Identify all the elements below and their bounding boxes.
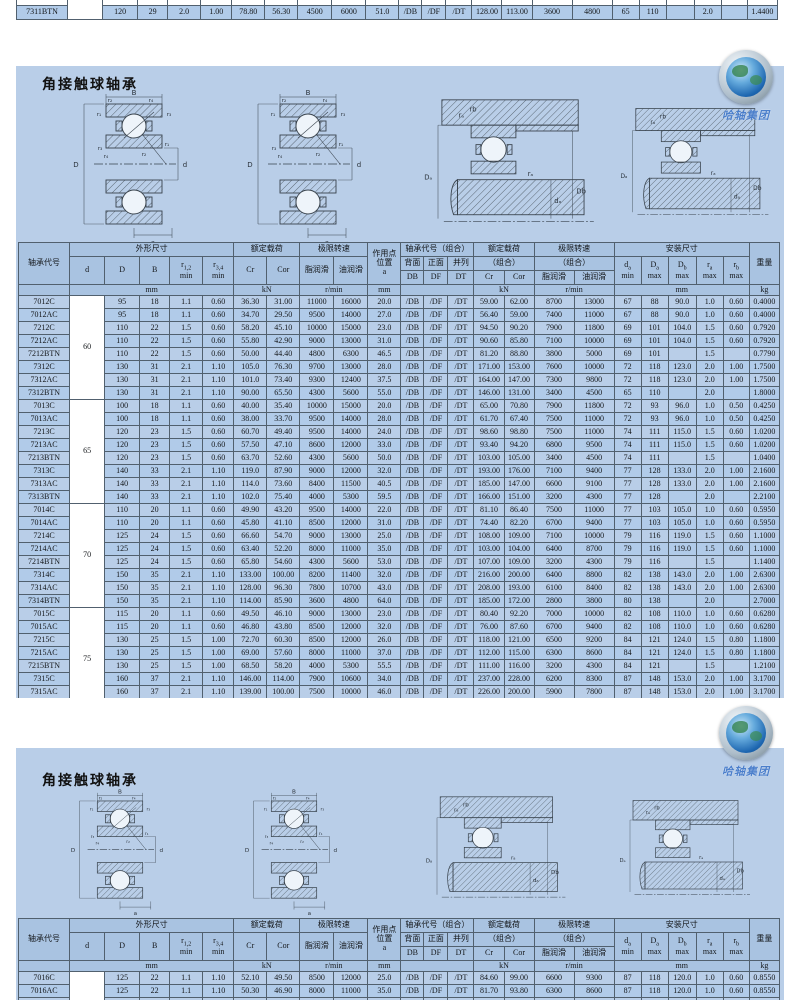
Cr-cell: 60.70 bbox=[234, 426, 267, 439]
table-row: 7314BTN150352.11.10114.0085.903600480064… bbox=[19, 595, 780, 608]
r12-cell: 1.5 bbox=[170, 634, 203, 647]
o-cell: 11000 bbox=[334, 985, 368, 998]
table-row: 7313C140332.11.10119.087.9090001200032.0… bbox=[19, 465, 780, 478]
table-row: 7212C110221.50.6058.2045.10100001500023.… bbox=[19, 322, 780, 335]
col-back: 背面 bbox=[401, 933, 424, 947]
globe-logo-icon bbox=[719, 50, 773, 104]
rb-cell: 0.60 bbox=[723, 322, 749, 335]
Da-cell: 128 bbox=[641, 465, 668, 478]
D-cell: 120 bbox=[105, 426, 140, 439]
group-combo-code: 轴承代号（组合） bbox=[401, 243, 474, 257]
page-title: 角接触球轴承 bbox=[42, 770, 138, 790]
a-cell: 64.0 bbox=[368, 595, 401, 608]
ra-cell: 2.0 bbox=[696, 478, 723, 491]
bore-diameter-merged-cell: 75 bbox=[70, 608, 105, 699]
col-d: d bbox=[70, 257, 105, 285]
db-cell: /DB bbox=[401, 374, 424, 387]
D-cell: 95 bbox=[105, 309, 140, 322]
da-cell: 72 bbox=[614, 361, 641, 374]
Cor-cell: 52.20 bbox=[267, 543, 300, 556]
cCor-cell: 200.00 bbox=[504, 569, 534, 582]
group-combo-load: 额定载荷 bbox=[474, 919, 534, 933]
bearing-code-cell: 7312AC bbox=[19, 374, 70, 387]
cCr-cell: 108.00 bbox=[474, 530, 504, 543]
bore-diameter-merged-cell: 60 bbox=[70, 296, 105, 400]
Cr-cell: 119.0 bbox=[234, 465, 267, 478]
spec-table-header: 轴承代号 外形尺寸 额定载荷 极限转速 作用点 位置 a 轴承代号（组合） 额定… bbox=[19, 919, 780, 972]
co-cell: 11800 bbox=[574, 322, 614, 335]
r12-cell: 1.1 bbox=[170, 621, 203, 634]
D-cell: 130 bbox=[105, 647, 140, 660]
Da-cell: 111 bbox=[641, 439, 668, 452]
da-cell: 82 bbox=[614, 608, 641, 621]
D-cell: 115 bbox=[105, 621, 140, 634]
df-cell: /DF bbox=[424, 530, 448, 543]
Db-cell: 96.0 bbox=[668, 400, 696, 413]
r12-cell: 1.5 bbox=[170, 530, 203, 543]
co-cell: 11000 bbox=[574, 504, 614, 517]
bearing-code-cell: 7311BTN bbox=[17, 6, 68, 20]
Cr-cell: 78.80 bbox=[232, 6, 265, 20]
rb-cell: 0.60 bbox=[723, 543, 749, 556]
rb-cell: 1.00 bbox=[723, 582, 749, 595]
a-cell: 32.0 bbox=[368, 569, 401, 582]
wt-cell: 0.6280 bbox=[749, 608, 779, 621]
table-row: 7013AC100181.10.6038.0033.7095001400028.… bbox=[19, 413, 780, 426]
group-dimensions: 外形尺寸 bbox=[70, 919, 234, 933]
unit-mm: mm bbox=[614, 961, 749, 972]
cCr-cell: 237.00 bbox=[474, 673, 504, 686]
a-cell: 35.0 bbox=[368, 543, 401, 556]
co-cell: 8800 bbox=[574, 569, 614, 582]
r12-cell: 1.5 bbox=[170, 439, 203, 452]
df-cell: /DF bbox=[424, 465, 448, 478]
cCr-cell: 164.00 bbox=[474, 374, 504, 387]
D-cell: 120 bbox=[105, 452, 140, 465]
df-cell: /DF bbox=[424, 491, 448, 504]
o-cell: 6300 bbox=[334, 348, 368, 361]
r12-cell: 1.5 bbox=[170, 543, 203, 556]
dt-cell: /DT bbox=[448, 335, 474, 348]
Db-cell bbox=[668, 452, 696, 465]
Cr-cell: 49.90 bbox=[234, 504, 267, 517]
dt-cell: /DT bbox=[448, 673, 474, 686]
table-row: 7214BTN125241.50.6065.8054.604300560053.… bbox=[19, 556, 780, 569]
wt-cell: 2.7000 bbox=[749, 595, 779, 608]
B-cell: 31 bbox=[140, 374, 170, 387]
df-cell: /DF bbox=[424, 621, 448, 634]
B-cell: 35 bbox=[140, 582, 170, 595]
ra-cell: 1.0 bbox=[696, 621, 723, 634]
cCor-cell: 93.80 bbox=[504, 985, 534, 998]
cg-cell: 3200 bbox=[534, 491, 574, 504]
table-row: 7016C125221.11.1052.1049.5085001200025.0… bbox=[19, 972, 780, 985]
df-cell: /DF bbox=[422, 6, 446, 20]
cCr-cell: 185.00 bbox=[474, 478, 504, 491]
bearing-code-cell: 7213BTN bbox=[19, 452, 70, 465]
db-cell: /DB bbox=[401, 673, 424, 686]
col-oil: 油润滑 bbox=[334, 933, 368, 961]
bearing-section-diagram bbox=[54, 88, 214, 246]
B-cell: 25 bbox=[140, 647, 170, 660]
a-cell: 33.0 bbox=[368, 439, 401, 452]
catalog-panel-2: 角接触球轴承 轴承代号 外形尺寸 额定载荷 极限转速 作用点 位置 a 轴承代号… bbox=[16, 748, 784, 1000]
Cor-cell: 58.20 bbox=[267, 660, 300, 673]
a-cell: 53.0 bbox=[368, 556, 401, 569]
da-cell: 87 bbox=[614, 686, 641, 699]
bearing-code-cell: 7215C bbox=[19, 634, 70, 647]
dt-cell: /DT bbox=[448, 504, 474, 517]
cCor-cell: 121.00 bbox=[504, 634, 534, 647]
ra-cell: 1.5 bbox=[696, 348, 723, 361]
cCor-cell: 131.00 bbox=[504, 387, 534, 400]
cg-cell: 6700 bbox=[534, 517, 574, 530]
D-cell: 130 bbox=[105, 634, 140, 647]
ra-cell: 2.0 bbox=[696, 361, 723, 374]
cCr-cell: 84.60 bbox=[474, 972, 504, 985]
cCor-cell: 115.00 bbox=[504, 647, 534, 660]
col-DF: DF bbox=[424, 271, 448, 285]
Cor-cell: 29.50 bbox=[267, 309, 300, 322]
table-row: 7015C75115201.10.6049.5046.1090001300023… bbox=[19, 608, 780, 621]
table-row: 7212AC110221.50.6055.8042.9090001300031.… bbox=[19, 335, 780, 348]
company-logo: 哈轴集团 bbox=[710, 50, 782, 123]
r34-cell: 0.60 bbox=[203, 426, 234, 439]
Cor-cell: 114.00 bbox=[267, 673, 300, 686]
Cr-cell: 105.0 bbox=[234, 361, 267, 374]
ra-cell: 1.0 bbox=[696, 413, 723, 426]
rb-cell: 0.60 bbox=[723, 621, 749, 634]
dt-cell: /DT bbox=[446, 6, 472, 20]
Db-cell: 153.0 bbox=[668, 673, 696, 686]
col-Cr: Cr bbox=[234, 257, 267, 285]
B-cell: 20 bbox=[140, 504, 170, 517]
Da-cell: 128 bbox=[641, 478, 668, 491]
B-cell: 22 bbox=[140, 348, 170, 361]
table-row: 7215BTN130251.51.0068.5058.204000530055.… bbox=[19, 660, 780, 673]
cCr-cell: 65.00 bbox=[474, 400, 504, 413]
D-cell: 130 bbox=[105, 387, 140, 400]
df-cell: /DF bbox=[424, 582, 448, 595]
wt-cell: 0.4000 bbox=[749, 309, 779, 322]
r34-cell: 0.60 bbox=[203, 543, 234, 556]
co-cell: 5000 bbox=[574, 348, 614, 361]
wt-cell: 1.1400 bbox=[749, 556, 779, 569]
da-cell: 82 bbox=[614, 569, 641, 582]
D-cell: 125 bbox=[105, 556, 140, 569]
combo-load-suffix: （组合） bbox=[474, 933, 534, 947]
o-cell: 5300 bbox=[334, 491, 368, 504]
r12-cell: 1.1 bbox=[170, 504, 203, 517]
co-cell: 3800 bbox=[574, 595, 614, 608]
da-cell: 77 bbox=[614, 465, 641, 478]
db-cell: /DB bbox=[401, 439, 424, 452]
bearing-code-cell: 7314BTN bbox=[19, 595, 70, 608]
co-cell: 9800 bbox=[574, 374, 614, 387]
r34-cell: 0.60 bbox=[203, 517, 234, 530]
rb-cell bbox=[723, 556, 749, 569]
dt-cell: /DT bbox=[448, 634, 474, 647]
Cr-cell: 63.70 bbox=[234, 452, 267, 465]
cCor-cell: 62.00 bbox=[504, 296, 534, 309]
ra-cell: 1.0 bbox=[696, 608, 723, 621]
D-cell: 110 bbox=[105, 517, 140, 530]
Da-cell: 111 bbox=[641, 426, 668, 439]
table-row: 7311BTN120292.01.0078.8056.304500600051.… bbox=[17, 6, 778, 20]
db-cell: /DB bbox=[401, 335, 424, 348]
bearing-code-cell: 7313C bbox=[19, 465, 70, 478]
Da-cell: 88 bbox=[641, 296, 668, 309]
Cor-cell: 56.30 bbox=[265, 6, 298, 20]
ra-cell: 2.0 bbox=[696, 686, 723, 699]
r12-cell: 1.5 bbox=[170, 348, 203, 361]
col-ra-max: ra max bbox=[696, 257, 723, 285]
group-combo-speed: 极限转速 bbox=[534, 919, 614, 933]
spec-table-header: 轴承代号 外形尺寸 额定载荷 极限转速 作用点 位置 a 轴承代号（组合） 额定… bbox=[19, 243, 780, 296]
cCor-cell: 86.40 bbox=[504, 504, 534, 517]
r34-cell: 1.10 bbox=[203, 595, 234, 608]
col-ra-max: ra max bbox=[696, 933, 723, 961]
df-cell: /DF bbox=[424, 400, 448, 413]
co-cell: 4300 bbox=[574, 556, 614, 569]
cCr-cell: 93.40 bbox=[474, 439, 504, 452]
Cor-cell: 44.40 bbox=[267, 348, 300, 361]
bearing-code-cell: 7013AC bbox=[19, 413, 70, 426]
df-cell: /DF bbox=[424, 972, 448, 985]
bearing-code-cell: 7015C bbox=[19, 608, 70, 621]
B-cell: 23 bbox=[140, 452, 170, 465]
co-cell: 9500 bbox=[574, 439, 614, 452]
a-cell: 32.0 bbox=[368, 465, 401, 478]
df-cell: /DF bbox=[424, 309, 448, 322]
cCor-cell: 104.00 bbox=[504, 543, 534, 556]
B-cell: 37 bbox=[140, 673, 170, 686]
da-cell: 72 bbox=[614, 413, 641, 426]
ra-cell: 2.0 bbox=[696, 374, 723, 387]
r12-cell: 1.5 bbox=[170, 322, 203, 335]
co-cell: 11000 bbox=[574, 413, 614, 426]
wt-cell: 0.7790 bbox=[749, 348, 779, 361]
col-combo-Cor: Cor bbox=[504, 271, 534, 285]
r12-cell: 1.5 bbox=[170, 452, 203, 465]
da-cell: 87 bbox=[614, 673, 641, 686]
db-cell: /DB bbox=[399, 6, 422, 20]
df-cell: /DF bbox=[424, 452, 448, 465]
Da-cell: 138 bbox=[641, 569, 668, 582]
dt-cell: /DT bbox=[448, 569, 474, 582]
r34-cell: 1.10 bbox=[203, 478, 234, 491]
cCr-cell: 216.00 bbox=[474, 569, 504, 582]
da-cell: 77 bbox=[614, 491, 641, 504]
cCor-cell: 82.20 bbox=[504, 517, 534, 530]
da-cell: 87 bbox=[614, 972, 641, 985]
dt-cell: /DT bbox=[448, 452, 474, 465]
cg-cell: 6600 bbox=[534, 972, 574, 985]
group-dimensions: 外形尺寸 bbox=[70, 243, 234, 257]
g-cell: 4300 bbox=[300, 387, 334, 400]
mounting-dimension-diagram bbox=[612, 792, 762, 914]
g-cell: 8000 bbox=[300, 647, 334, 660]
co-cell: 11000 bbox=[574, 309, 614, 322]
group-rated-load: 额定载荷 bbox=[234, 243, 300, 257]
db-cell: /DB bbox=[401, 660, 424, 673]
r12-cell: 1.1 bbox=[170, 608, 203, 621]
g-cell: 4300 bbox=[300, 556, 334, 569]
B-cell: 24 bbox=[140, 530, 170, 543]
cCr-cell: 166.00 bbox=[474, 491, 504, 504]
o-cell: 15000 bbox=[334, 400, 368, 413]
cCr-cell: 98.60 bbox=[474, 426, 504, 439]
Cr-cell: 36.30 bbox=[234, 296, 267, 309]
Cor-cell: 35.40 bbox=[267, 400, 300, 413]
cg-cell: 6800 bbox=[534, 439, 574, 452]
r12-cell: 2.1 bbox=[170, 582, 203, 595]
g-cell: 7800 bbox=[300, 582, 334, 595]
db-cell: /DB bbox=[401, 582, 424, 595]
Cor-cell: 54.60 bbox=[267, 556, 300, 569]
co-cell: 8300 bbox=[574, 673, 614, 686]
Cr-cell: 72.70 bbox=[234, 634, 267, 647]
wt-cell: 0.4250 bbox=[749, 400, 779, 413]
unit-mm: mm bbox=[70, 285, 234, 296]
bearing-code-cell: 7213AC bbox=[19, 439, 70, 452]
da-cell: 84 bbox=[614, 660, 641, 673]
db-cell: /DB bbox=[401, 621, 424, 634]
cg-cell: 3800 bbox=[534, 348, 574, 361]
col-r12-min: r1,2 min bbox=[170, 933, 203, 961]
bearing-code-cell: 7016C bbox=[19, 972, 70, 985]
bearing-code-cell: 7012C bbox=[19, 296, 70, 309]
D-cell: 100 bbox=[105, 400, 140, 413]
wt-cell: 0.4250 bbox=[749, 413, 779, 426]
table-row: 7315AC160372.11.10139.00100.007500100004… bbox=[19, 686, 780, 699]
wt-cell: 0.7920 bbox=[749, 335, 779, 348]
col-front: 正面 bbox=[424, 933, 448, 947]
r34-cell: 0.60 bbox=[203, 556, 234, 569]
Da-cell: 108 bbox=[641, 608, 668, 621]
o-cell: 13000 bbox=[334, 530, 368, 543]
cCr-cell: 103.00 bbox=[474, 543, 504, 556]
B-cell: 18 bbox=[140, 400, 170, 413]
o-cell: 15000 bbox=[334, 322, 368, 335]
D-cell: 160 bbox=[105, 673, 140, 686]
o-cell: 13000 bbox=[334, 608, 368, 621]
r12-cell: 1.5 bbox=[170, 426, 203, 439]
Cr-cell: 128.00 bbox=[234, 582, 267, 595]
dt-cell: /DT bbox=[448, 530, 474, 543]
cg-cell: 2800 bbox=[534, 595, 574, 608]
table-row: 7212BTN110221.50.6050.0044.404800630046.… bbox=[19, 348, 780, 361]
rb-cell: 0.50 bbox=[723, 400, 749, 413]
r12-cell: 1.5 bbox=[170, 556, 203, 569]
da-cell: 84 bbox=[614, 647, 641, 660]
rb-cell: 0.60 bbox=[723, 335, 749, 348]
Db-cell bbox=[668, 491, 696, 504]
B-cell: 23 bbox=[140, 439, 170, 452]
a-cell: 25.0 bbox=[368, 530, 401, 543]
bearing-code-cell: 7014C bbox=[19, 504, 70, 517]
Db-cell: 96.0 bbox=[668, 413, 696, 426]
a-cell: 31.0 bbox=[368, 335, 401, 348]
ra-cell: 1.5 bbox=[696, 530, 723, 543]
col-DT: DT bbox=[448, 947, 474, 961]
wt-cell: 1.0200 bbox=[749, 426, 779, 439]
D-cell: 110 bbox=[105, 335, 140, 348]
Db-cell: 104.0 bbox=[668, 322, 696, 335]
df-cell: /DF bbox=[424, 517, 448, 530]
cg-cell: 7400 bbox=[534, 309, 574, 322]
Db-cell: 119.0 bbox=[668, 543, 696, 556]
r34-cell: 1.10 bbox=[203, 985, 234, 998]
r34-cell: 0.60 bbox=[203, 348, 234, 361]
o-cell: 12000 bbox=[334, 517, 368, 530]
cg-cell: 7900 bbox=[534, 400, 574, 413]
ra-cell: 1.5 bbox=[696, 335, 723, 348]
D-cell: 130 bbox=[105, 660, 140, 673]
Da-cell: 128 bbox=[641, 491, 668, 504]
rb-cell: 0.50 bbox=[723, 413, 749, 426]
ra-cell: 2.0 bbox=[696, 387, 723, 400]
da-cell: 87 bbox=[614, 985, 641, 998]
r34-cell: 0.60 bbox=[203, 621, 234, 634]
col-combo-Cr: Cr bbox=[474, 947, 504, 961]
db-cell: /DB bbox=[401, 504, 424, 517]
cg-cell: 6400 bbox=[534, 543, 574, 556]
unit-mm: mm bbox=[368, 285, 401, 296]
g-cell: 9500 bbox=[300, 426, 334, 439]
bearing-code-cell: 7014AC bbox=[19, 517, 70, 530]
co-cell: 9300 bbox=[574, 972, 614, 985]
co-cell: 4300 bbox=[574, 660, 614, 673]
co-cell: 4300 bbox=[574, 491, 614, 504]
r34-cell: 1.00 bbox=[203, 660, 234, 673]
Da-cell: 118 bbox=[641, 374, 668, 387]
wt-cell: 1.7500 bbox=[749, 361, 779, 374]
r34-cell: 0.60 bbox=[203, 309, 234, 322]
db-cell: /DB bbox=[401, 491, 424, 504]
table-row: 7312AC130312.11.10101.073.4093001240037.… bbox=[19, 374, 780, 387]
df-cell: /DF bbox=[424, 556, 448, 569]
D-cell: 110 bbox=[105, 322, 140, 335]
wt-cell: 2.1600 bbox=[749, 465, 779, 478]
rb-cell: 0.60 bbox=[723, 985, 749, 998]
r12-cell: 1.1 bbox=[170, 413, 203, 426]
o-cell: 12400 bbox=[334, 374, 368, 387]
wt-cell: 3.1700 bbox=[749, 673, 779, 686]
Da-cell: 116 bbox=[641, 543, 668, 556]
col-d: d bbox=[70, 933, 105, 961]
dt-cell: /DT bbox=[448, 374, 474, 387]
cCr-cell: 208.00 bbox=[474, 582, 504, 595]
rb-cell: 0.60 bbox=[723, 426, 749, 439]
Cor-cell: 100.00 bbox=[267, 686, 300, 699]
o-cell: 12000 bbox=[334, 972, 368, 985]
cg-cell: 7100 bbox=[534, 465, 574, 478]
col-DB: DB bbox=[401, 947, 424, 961]
cCor-cell: 105.00 bbox=[504, 452, 534, 465]
a-cell: 27.0 bbox=[368, 309, 401, 322]
da-cell: 74 bbox=[614, 426, 641, 439]
ra-cell: 1.5 bbox=[696, 452, 723, 465]
cCr-cell: 111.00 bbox=[474, 660, 504, 673]
cg-cell: 6400 bbox=[534, 569, 574, 582]
Cr-cell: 50.00 bbox=[234, 348, 267, 361]
o-cell: 12000 bbox=[334, 634, 368, 647]
wt-cell: 0.8550 bbox=[749, 972, 779, 985]
Db-cell: 120.0 bbox=[668, 972, 696, 985]
o-cell: 4800 bbox=[334, 595, 368, 608]
Cr-cell: 49.50 bbox=[234, 608, 267, 621]
